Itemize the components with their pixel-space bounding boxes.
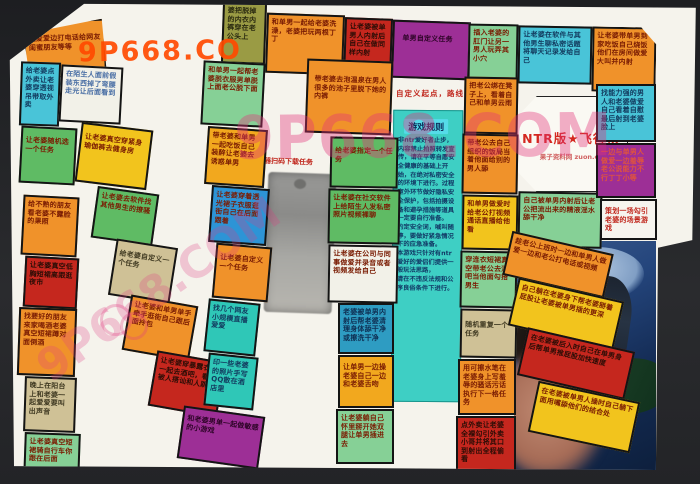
game-subtitle: 果子资料网 zuon.cc (540, 151, 602, 161)
board-cell-b1: 在陌生人面前假装东西掉了弯腰走光让后面看到 (59, 64, 124, 124)
board-cell-c4: 让老婆自定义一个任务 (212, 243, 273, 303)
qr-code-blurred (264, 172, 337, 314)
rules-title: 游戏规则 (404, 119, 448, 134)
board-cell-b2: 让老婆真空穿紧身瑜伽裤去健身房 (75, 122, 154, 190)
board-cell-g3: 策划一场勾引老婆的场景游戏 (600, 199, 657, 240)
paper: 游戏规则 非ntr爱好者止步，内容禁止拍照转发宣传，请在平等自愿安全健康的基础上… (0, 0, 700, 484)
board-cell-c2: 带老婆和单男一起吃饭自己装醉让老婆去诱惑单男 (204, 126, 268, 188)
board-cell-a6: 晚上在阳台上和老婆一起爱爱要叫出声音 (23, 376, 77, 433)
board-cell-c5: 找几个网友小规模直播爱爱 (203, 298, 260, 356)
board-cell-t5: 单男自定义任务 (391, 20, 471, 81)
board-cell-d6: 让老婆躺自己怀里掰开她双腿让单男插进去 (336, 409, 394, 464)
board-cell-d4: 老婆被单男内射后帮老婆清理身体舔干净或擦洗干净 (338, 303, 394, 354)
board-cell-d5: 让单男一边操老婆自己一边和老婆舌吻 (338, 355, 394, 408)
board-cell-g1: 找能力强的男人和老婆做爱自己看着自慰最后射到老婆脸上 (596, 84, 656, 142)
board-cell-t2: 婆把脱掉的内衣内裤穿在老公头上 (221, 1, 267, 64)
board-cell-e4: 随机重复一个任务 (460, 309, 518, 359)
board-cell-d3: 让老婆在公司与同事做爱并录音或者视频发给自己 (327, 244, 398, 303)
board-cell-d0: 带老婆去泡温泉在男人很多的池子里脱下她的内裤 (305, 59, 394, 136)
board-cell-e6: 点外卖让老婆全裸勾引外卖小哥并将其口到射出全程偷看 (456, 416, 516, 472)
board-cell-a3: 给不熟的朋友看老婆不露脸的果照 (20, 195, 79, 258)
board-cell-c1: 和单男一起帮老婆脱衣服男单脱上面老公脱下面 (200, 60, 265, 127)
board-cell-g2: 一边与单男人做爱一边羞辱老公说能力不行丁丁小等 (596, 143, 656, 198)
start-note: 自定义起点，路线 (396, 88, 470, 99)
board-cell-d1: 给老婆指定一个任务 (330, 136, 399, 188)
rules-panel: 游戏规则 非ntr爱好者止步，内容禁止拍照转发宣传，请在平等自愿安全健康的基础上… (391, 110, 464, 403)
rules-body: 非ntr爱好者止步，内容禁止拍照转发宣传，请在平等自愿安全健康的基础上开始，在绝… (397, 137, 458, 294)
board-cell-b7: 和老婆男单一起做敏感的小游戏 (177, 406, 266, 470)
board-scan: 游戏规则 非ntr爱好者止步，内容禁止拍照转发宣传，请在平等自愿安全健康的基础上… (0, 0, 700, 484)
board-cell-c3: 让老婆穿着透光裙子衣服逛街自己在后面跟着 (208, 185, 270, 246)
board-cell-a4: 让老婆真空低胸短裙高跟逛夜市 (23, 256, 80, 310)
board-cell-d2: 让老婆在社交软件上给陌生人发私密照片视频裸聊 (328, 188, 401, 244)
board-cell-e5: 用可擦水笔在老婆身上写羞辱的骚话污话执行下一格任务 (458, 359, 516, 415)
board-cell-t8: 让老婆带单男到家吃饭自己烧饭他们在房间做爱大叫并内射 (591, 26, 656, 92)
board-cell-e1: 带老公去自己组织的饭局当着他面给别的男人舔 (461, 134, 518, 195)
board-cell-t6: 插入老婆的肛门让另一男人玩弄其小穴 (467, 24, 518, 83)
board-cell-b4: 给老婆自定义一个任务 (108, 239, 178, 305)
board-cell-e0: 把老公绑在凳子上，看着自己和单男云雨 (464, 77, 519, 135)
board-cell-a5: 找要好的朋友来家喝酒老婆真空短裙蹲对面倒酒 (17, 307, 77, 377)
board-cell-t7: 让老婆在软件与其他男生聊私密话题将聊天记录发给自己 (517, 25, 592, 84)
board-cell-a7: 让老婆真空短裙骑自行车你跟在后面 (23, 432, 81, 481)
board-cell-a1: 给老婆点外卖让老婆穿透视吊带取外卖 (19, 61, 61, 126)
board-cell-a2: 让老婆随机选一个任务 (19, 126, 78, 186)
board-cell-b3: 让老婆去软件找其他男生的撩骚 (91, 186, 160, 246)
board-cell-c6: 印一些老婆的照片手写QQ散在酒店里 (203, 353, 258, 411)
